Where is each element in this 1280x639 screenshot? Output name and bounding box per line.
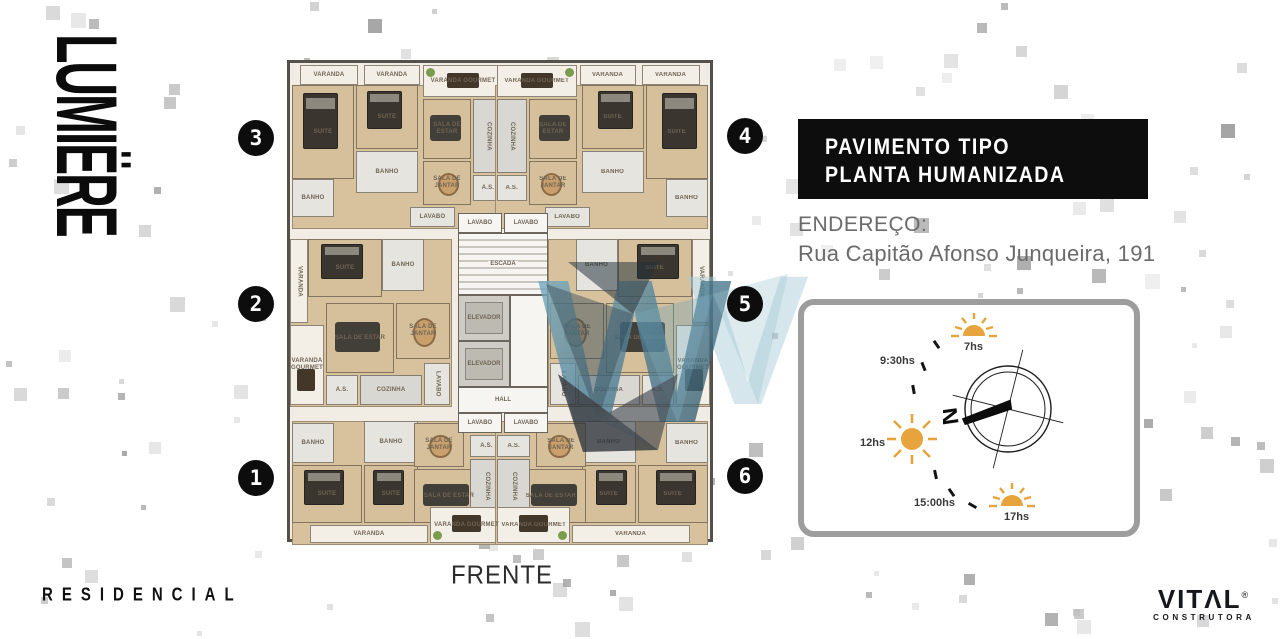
pixel-square: [89, 19, 99, 29]
arc-dash: [920, 362, 926, 371]
address-block: ENDEREÇO: Rua Capitão Afonso Junqueira, …: [798, 211, 1155, 268]
pixel-square: [1073, 609, 1080, 616]
compass-icon: N: [943, 344, 1073, 474]
pixel-square: [327, 604, 333, 610]
north-letter: N: [943, 406, 965, 427]
room-elevador: ELEVADOR: [458, 295, 510, 341]
room-lavabo: LAVABO: [504, 213, 548, 233]
pixel-square: [432, 9, 437, 14]
sun-17hs-icon: [988, 481, 1036, 513]
pixel-square: [1199, 250, 1206, 257]
title-line1: PAVIMENTO TIPO: [825, 132, 1142, 163]
pixel-square: [47, 498, 55, 506]
pixel-square: [682, 552, 692, 562]
developer-subtitle: CONSTRUTORA: [1148, 613, 1260, 622]
pixel-square: [6, 361, 12, 367]
pixel-square: [9, 159, 17, 167]
title-box: PAVIMENTO TIPO PLANTA HUMANIZADA: [798, 119, 1148, 199]
pixel-square: [59, 350, 71, 362]
pixel-square: [1269, 539, 1277, 547]
pixel-square: [234, 385, 248, 399]
sun-7hs-icon: [950, 311, 998, 343]
sun-17hs-label: 17hs: [1004, 511, 1029, 523]
brand-lumiere-vertical: LUMIËRE: [36, 34, 135, 236]
sun-12hs-label: 12hs: [860, 437, 885, 449]
pixel-square: [874, 571, 879, 576]
pixel-square: [169, 84, 180, 95]
pixel-square: [870, 56, 883, 69]
sun-1500hs-label: 15:00hs: [914, 497, 955, 509]
pixel-square: [58, 388, 69, 399]
sun-12hs-icon: [884, 411, 940, 467]
watermark-w-logo: V W: [538, 254, 810, 454]
pixel-square: [1220, 326, 1232, 338]
pixel-square: [944, 54, 958, 68]
developer-name: VITΛL®: [1148, 583, 1260, 611]
pixel-square: [1190, 167, 1198, 175]
pixel-square: [1100, 198, 1114, 212]
pixel-square: [978, 293, 983, 298]
pixel-square: [1257, 442, 1265, 450]
pixel-square: [234, 417, 240, 423]
pixel-square: [834, 59, 846, 71]
pixel-square: [1244, 174, 1250, 180]
arc-dash: [933, 340, 941, 349]
pixel-square: [1201, 427, 1213, 439]
room-lavabo: LAVABO: [458, 213, 502, 233]
brand-residencial: RESIDENCIAL: [42, 584, 243, 605]
unit-badge-6: 6: [727, 458, 763, 494]
pixel-square: [610, 590, 616, 596]
pixel-square: [122, 451, 127, 456]
arc-dash: [933, 470, 938, 479]
pixel-square: [16, 126, 25, 135]
arc-dash: [911, 385, 916, 394]
pixel-square: [1144, 419, 1153, 428]
sun-930hs-label: 9:30hs: [880, 355, 915, 367]
address-value: Rua Capitão Afonso Junqueira, 191: [798, 239, 1155, 268]
pixel-square: [1054, 85, 1068, 99]
pixel-square: [916, 87, 925, 96]
pixel-square: [619, 597, 633, 611]
sun-orientation-panel: 7hs 9:30hs 12hs 15:00hs 17hs: [798, 299, 1140, 537]
pixel-square: [170, 297, 185, 312]
pixel-square: [1181, 287, 1186, 292]
front-label: FRENTE: [451, 561, 553, 591]
pixel-square: [1045, 613, 1058, 626]
pixel-square: [118, 393, 125, 400]
pixel-square: [368, 19, 382, 33]
pixel-square: [401, 49, 411, 59]
pixel-square: [62, 558, 72, 568]
pixel-square: [1145, 274, 1160, 289]
pixel-square: [964, 574, 975, 585]
unit-badge-2: 2: [238, 286, 274, 322]
pixel-square: [1017, 288, 1023, 294]
pixel-square: [139, 225, 151, 237]
pixel-square: [1001, 3, 1008, 10]
pixel-square: [1260, 459, 1274, 473]
pixel-square: [1077, 620, 1091, 634]
unit-badge-4: 4: [727, 118, 763, 154]
pixel-square: [1272, 598, 1278, 604]
pixel-square: [486, 614, 494, 622]
pixel-square: [1192, 343, 1197, 348]
pixel-square: [575, 622, 590, 637]
pixel-square: [1221, 124, 1235, 138]
pixel-square: [866, 592, 872, 598]
pixel-square: [1184, 391, 1196, 403]
pixel-square: [912, 603, 919, 610]
pixel-square: [752, 216, 761, 225]
unit-badge-1: 1: [238, 460, 274, 496]
room-elevador: ELEVADOR: [458, 341, 510, 387]
pixel-square: [791, 537, 804, 550]
registered-mark: ®: [1242, 590, 1251, 600]
pixel-square: [85, 570, 98, 583]
pixel-square: [1237, 63, 1247, 73]
pixel-square: [1092, 269, 1106, 283]
pixel-square: [1226, 300, 1234, 308]
developer-logo: VITΛL® CONSTRUTORA: [1148, 583, 1260, 622]
pixel-square: [141, 505, 146, 510]
pixel-square: [154, 187, 161, 194]
pixel-square: [1016, 46, 1027, 57]
unit-badge-5: 5: [727, 286, 763, 322]
pixel-square: [977, 23, 987, 33]
pixel-square: [149, 442, 161, 454]
pixel-square: [563, 579, 571, 587]
arc-dash: [948, 488, 956, 497]
pixel-square: [761, 550, 771, 560]
pixel-square: [164, 97, 176, 109]
pixel-square: [14, 388, 27, 401]
pixel-square: [617, 555, 629, 567]
room-hall: HALL: [458, 387, 548, 413]
arc-dash: [968, 502, 977, 509]
pixel-square: [1160, 489, 1172, 501]
pixel-square: [255, 551, 262, 558]
pixel-square: [942, 73, 952, 83]
pixel-square: [310, 2, 319, 11]
room-escada: ESCADA: [458, 233, 548, 295]
pixel-square: [46, 6, 60, 20]
pixel-square: [1174, 211, 1186, 223]
address-label: ENDEREÇO:: [798, 211, 1155, 239]
pixel-square: [71, 13, 86, 28]
title-line2: PLANTA HUMANIZADA: [825, 160, 1142, 191]
unit-badge-3: 3: [238, 120, 274, 156]
room-lavabo: LAVABO: [458, 413, 502, 433]
pixel-square: [119, 379, 124, 384]
pixel-square: [959, 595, 967, 603]
pixel-square: [879, 269, 890, 280]
pixel-square: [212, 321, 218, 327]
pixel-square: [1231, 437, 1240, 446]
pixel-square: [197, 631, 202, 636]
pixel-square: [533, 549, 544, 560]
